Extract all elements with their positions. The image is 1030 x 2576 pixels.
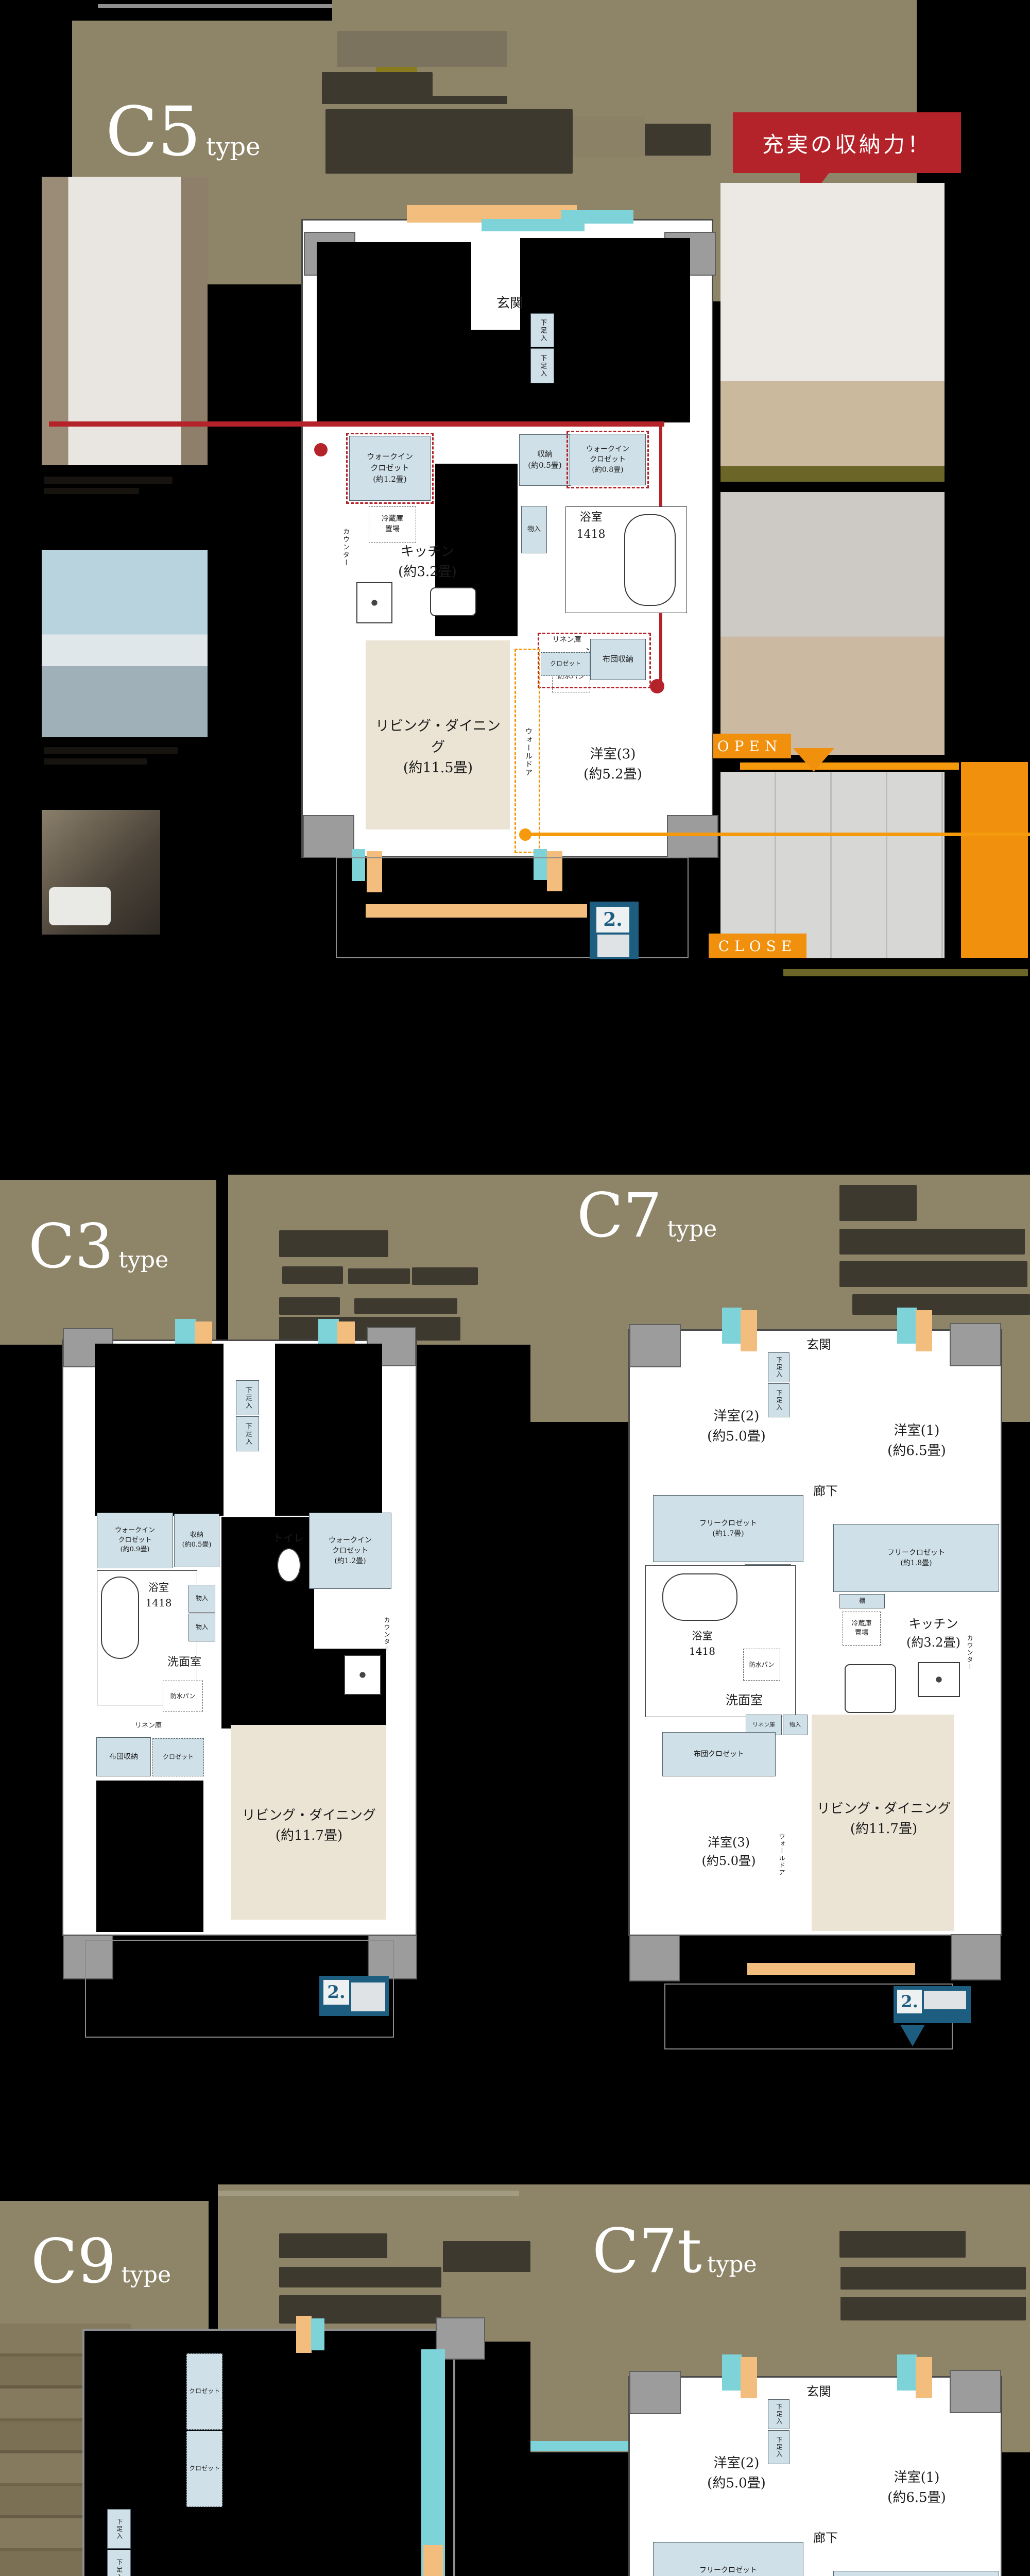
- redacted-text-bar: [325, 109, 573, 174]
- c5-shoe-cabinet: 下足入: [530, 313, 554, 347]
- c7-type-suffix: type: [667, 1218, 717, 1241]
- c3-type-suffix: type: [118, 1249, 168, 1272]
- c7-room-label-mono: 物入: [783, 1715, 808, 1735]
- c7-room-label-counter: カウンター: [964, 1623, 974, 1682]
- balcony-callout-panel: [924, 1991, 966, 2009]
- annotation-line-red: [49, 421, 664, 427]
- c3-room-label-mono: 物入: [188, 1585, 215, 1613]
- redacted-text-bar: [322, 72, 433, 98]
- c7-shelf: 棚: [839, 1594, 885, 1608]
- redacted-text-bar: [279, 1230, 388, 1257]
- c3-room-label-storage: 収納 (約0.5畳): [174, 1514, 219, 1567]
- photo-caption-bar: [44, 758, 147, 765]
- c7-room-label-hall: 廊下: [802, 1482, 849, 1500]
- redacted-text-bar: [354, 1298, 457, 1314]
- c7t-room-label-west1: 洋室(1) (約6.5畳): [870, 2468, 963, 2508]
- redacted-area: [221, 1517, 314, 1728]
- redacted-text-bar: [443, 2241, 530, 2272]
- c9-balcony-strip: [421, 2349, 445, 2576]
- c3-room-label-futon: 布団収納: [96, 1737, 151, 1776]
- redacted-text-bar: [839, 2231, 966, 2258]
- redacted-text-bar: [852, 1294, 1030, 1315]
- c3-room-label-bath: 浴室 1418: [138, 1580, 179, 1611]
- redacted-room: [95, 1344, 224, 1516]
- redacted-text-bar: [412, 1267, 478, 1285]
- column: [667, 815, 718, 858]
- c5-type-title: C5 type: [106, 98, 261, 166]
- c7-room-label-west2: 洋室(2) (約5.0畳): [690, 1406, 783, 1447]
- c9-type-suffix: type: [121, 2264, 171, 2286]
- redacted-highlight: [573, 116, 645, 157]
- balcony-callout-number: 2.: [897, 1990, 922, 2013]
- arrow-down-icon: [793, 748, 834, 772]
- bathtub-icon: [101, 1577, 139, 1659]
- redacted-text-bar: [282, 1266, 343, 1284]
- c5-room-label-futon: 布団収納: [590, 639, 646, 680]
- c5-shoe-cabinet: 下足入: [530, 348, 554, 383]
- c3-type-title: C3 type: [28, 1216, 168, 1277]
- c3-room-label-toilet: トイレ: [268, 1530, 309, 1546]
- c7t-room-label-fc18: フリークロゼット (約1.8畳): [833, 2571, 999, 2576]
- window-accent: [741, 1310, 757, 1351]
- c5-storage-banner: 充実の収納力！: [733, 112, 961, 173]
- sink-icon: [430, 587, 476, 616]
- balcony-sill: [747, 1963, 915, 1975]
- c9-shoe-cabinet: 下足入: [107, 2550, 131, 2576]
- c3-room-label-ld: リビング・ダイニング (約11.7畳): [234, 1806, 384, 1846]
- window-accent: [561, 210, 633, 224]
- window-accent: [916, 2357, 932, 2398]
- column: [950, 1323, 1001, 1366]
- balcony-callout-number: 2.: [323, 1980, 349, 2005]
- photo-balcony: [42, 550, 208, 737]
- c5-room-label-closet: クロゼット: [541, 652, 590, 676]
- c7-room-label-bath: 浴室 1418: [678, 1628, 727, 1659]
- header-rule: [218, 2191, 519, 2196]
- c5-room-label-genkan: 玄関: [482, 294, 538, 314]
- photo-closet-open: [720, 183, 945, 466]
- bathtub-icon: [624, 514, 676, 606]
- annotation-dot-red: [650, 679, 664, 693]
- c3-room-label-wash: 洗面室: [153, 1654, 215, 1671]
- window-accent: [722, 2354, 742, 2391]
- c7t-shoe-cabinet: 下足入: [768, 2399, 789, 2429]
- c5-room-label-counter: カウンター: [339, 513, 350, 582]
- column: [629, 1935, 680, 1981]
- annotation-dot-red: [314, 443, 328, 456]
- window-accent: [897, 1308, 917, 1344]
- c5-wic1-highlight: ウォークイン クロゼット (約1.2畳): [346, 433, 434, 504]
- c7-type-label: C7: [577, 1185, 662, 1246]
- photo-caption-bar: [44, 477, 173, 484]
- column: [950, 2370, 1001, 2413]
- c7-room-label-west1: 洋室(1) (約6.5畳): [870, 1421, 963, 1461]
- window-accent: [423, 2545, 443, 2576]
- c7t-type-label: C7t: [592, 2221, 702, 2281]
- c3-room-label-wic09: ウォークイン クロゼット (約0.9畳): [97, 1513, 173, 1568]
- balcony-callout-panel: [351, 1982, 385, 2011]
- c5-room-label-walldoor: ウォールドア: [521, 703, 534, 801]
- photo-caption-bar: [44, 747, 178, 754]
- c7t-type-suffix: type: [707, 2253, 757, 2276]
- balcony-callout-panel: [597, 935, 629, 957]
- c7-room-label-futon: 布団クロゼット: [662, 1732, 776, 1776]
- window-accent: [722, 1308, 742, 1344]
- redacted-room: [275, 1344, 382, 1516]
- c9-type-label: C9: [31, 2231, 116, 2292]
- c5-room-label-mono: 物入: [521, 506, 547, 553]
- window-accent: [741, 2357, 757, 2398]
- window-accent: [897, 2354, 917, 2391]
- stove-icon: [918, 1662, 960, 1697]
- redacted-text-bar: [279, 2267, 441, 2287]
- c9-type-title: C9 type: [31, 2231, 171, 2292]
- redacted-area: [474, 582, 518, 629]
- c3-room-label-wic12: ウォークイン クロゼット (約1.2畳): [309, 1513, 391, 1589]
- redacted-text-bar: [839, 1185, 917, 1221]
- c9-closet-cell: クロゼット: [186, 2353, 222, 2430]
- c7-room-label-fc17: フリークロゼット (約1.7畳): [653, 1495, 803, 1562]
- c5-room-label-wic1: ウォークイン クロゼット (約1.2畳): [349, 436, 431, 501]
- c5-type-suffix: type: [206, 134, 261, 159]
- c9-closet-cell: クロゼット: [186, 2431, 222, 2507]
- redacted-text-bar: [645, 124, 711, 156]
- redacted-text-bar: [839, 1229, 1025, 1255]
- photo-bathroom: [42, 810, 160, 935]
- c7-type-title: C7 type: [577, 1185, 717, 1246]
- c5-room-label-bath: 浴室 1418: [566, 509, 615, 543]
- c7-room-label-fc18: フリークロゼット (約1.8畳): [833, 1524, 999, 1592]
- c5-room-label-west3: 洋室(3) (約5.2畳): [554, 744, 672, 785]
- c3-type-label: C3: [28, 1216, 113, 1277]
- c5-wic2-highlight: ウォークイン クロゼット (約0.8畳): [566, 431, 649, 488]
- redacted-room: [96, 1781, 203, 1932]
- bathtub-in-photo: [49, 887, 111, 925]
- c5-room-label-kitchen: キッチン (約3.2畳): [379, 542, 476, 582]
- annotation-line-orange: [529, 833, 1030, 836]
- c3-shoe-cabinet: 下足入: [236, 1416, 259, 1451]
- open-tag: OPEN: [709, 734, 791, 758]
- window-accent: [311, 2318, 324, 2350]
- column: [951, 1934, 1001, 1980]
- c7-room-label-west3: 洋室(3) (約5.0畳): [685, 1833, 772, 1870]
- balcony-sill: [366, 904, 587, 918]
- stove-icon: [344, 1655, 381, 1695]
- close-tag: CLOSE: [709, 934, 806, 958]
- c7-shoe-cabinet: 下足入: [768, 1352, 789, 1382]
- bathtub-icon: [662, 1573, 737, 1621]
- open-close-arrow-band: [740, 762, 959, 770]
- column: [629, 1324, 681, 1367]
- c7-room-label-wash: 洗面室: [711, 1691, 778, 1709]
- redacted-text-bar: [348, 1268, 410, 1284]
- toilet-icon: [277, 1548, 301, 1582]
- c7t-room-label-hall: 廊下: [802, 2529, 849, 2547]
- c3-waterpan: 防水パン: [163, 1681, 203, 1711]
- c7t-room-label-genkan: 玄関: [793, 2382, 845, 2401]
- c7-room-label-genkan: 玄関: [793, 1335, 845, 1354]
- c7t-room-label-west2: 洋室(2) (約5.0畳): [690, 2453, 783, 2494]
- c7-waterpan: 防水パン: [743, 1649, 780, 1681]
- stove-icon: [356, 582, 392, 623]
- c7t-room-label-fc17: フリークロゼット (約1.7畳): [653, 2542, 803, 2576]
- c7-room-label-walldoor: ウォールドア: [775, 1824, 786, 1886]
- c5-room-label-ld: リビング・ダイニング (約11.5畳): [370, 716, 506, 779]
- window-accent: [916, 1310, 932, 1351]
- photo-caption-olive-bar: [783, 969, 1028, 976]
- photo-caption-olive-bar: [720, 466, 945, 482]
- brochure-page: C5 type 充実の収納力！ OPEN CLOSE 玄関 下足入 下足入: [0, 0, 1030, 2576]
- c5-type-label: C5: [106, 98, 201, 166]
- redacted-text-bar: [840, 2267, 1026, 2290]
- c9-shoe-cabinet: 下足入: [107, 2509, 131, 2549]
- c5-fridge-space: 冷蔵庫 置場: [369, 506, 416, 543]
- c5-room-label-wic2: ウォークイン クロゼット (約0.8畳): [570, 434, 646, 485]
- photo-caption-bar: [44, 488, 139, 494]
- redacted-text-bar: [337, 31, 507, 67]
- c3-room-label-linen: リネン庫: [128, 1721, 169, 1731]
- redacted-text-bar: [322, 96, 507, 104]
- balcony-callout-number: 2.: [596, 907, 629, 933]
- orange-side-band: [961, 762, 1028, 958]
- c7-room-label-ld: リビング・ダイニング (約11.7畳): [815, 1799, 953, 1839]
- c7t-type-title: C7t type: [592, 2221, 757, 2281]
- redacted-area: [435, 330, 520, 425]
- c3-room-label-counter: カウンター: [381, 1605, 391, 1664]
- arrow-down-icon: [900, 2025, 925, 2046]
- c9-floor-plan: [82, 2329, 455, 2576]
- photo-kids-room-open: [720, 492, 945, 755]
- column: [629, 2371, 681, 2414]
- redacted-text-bar: [839, 1261, 1027, 1287]
- redacted-text-bar: [279, 2233, 387, 2258]
- c7-fridge-space: 冷蔵庫 置場: [843, 1612, 881, 1646]
- sink-icon: [845, 1664, 896, 1713]
- photo-walldoor-closed: [720, 772, 945, 958]
- c3-room-label-mono2: 物入: [188, 1614, 215, 1641]
- window-accent: [296, 2316, 312, 2353]
- c3-shoe-cabinet: 下足入: [236, 1380, 259, 1415]
- redacted-text-bar: [840, 2297, 1026, 2320]
- redacted-text-bar: [279, 1297, 340, 1315]
- c5-room-label-storage: 収納 (約0.5畳): [519, 434, 571, 486]
- c3-room-label-closet: クロゼット: [152, 1738, 204, 1776]
- column: [303, 815, 354, 858]
